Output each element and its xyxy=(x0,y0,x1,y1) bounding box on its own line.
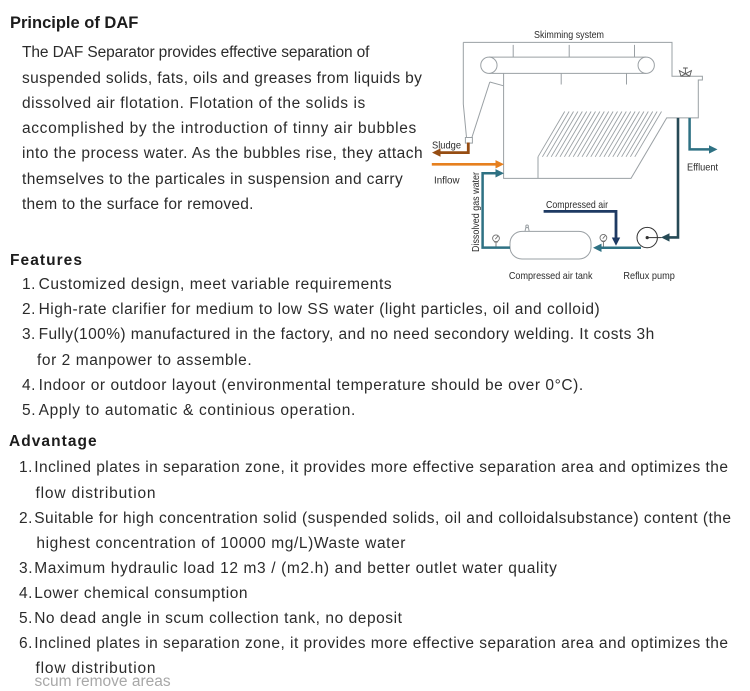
svg-text:Compressed air: Compressed air xyxy=(546,199,608,211)
svg-text:Reflux pump: Reflux pump xyxy=(623,270,675,282)
svg-text:Sludge: Sludge xyxy=(432,140,461,152)
svg-text:Effluent: Effluent xyxy=(687,161,718,173)
svg-text:Skimming system: Skimming system xyxy=(534,29,604,41)
svg-text:Compressed air tank: Compressed air tank xyxy=(509,270,593,282)
svg-text:Inflow: Inflow xyxy=(434,174,460,186)
svg-text:Dissolved gas water: Dissolved gas water xyxy=(470,172,482,252)
